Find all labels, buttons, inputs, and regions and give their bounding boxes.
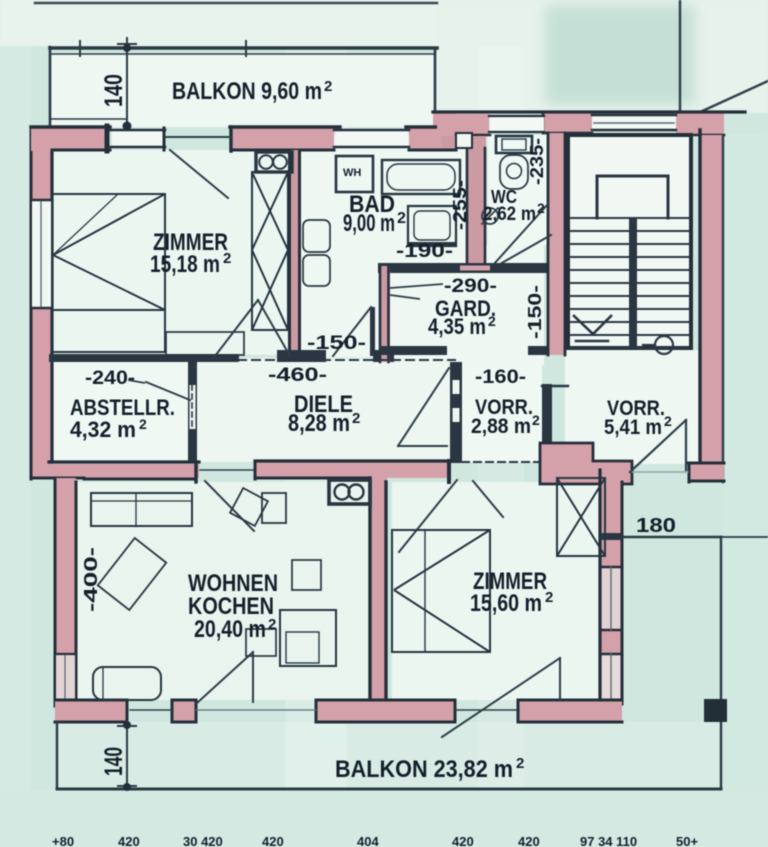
svg-text:2: 2: [139, 416, 147, 432]
svg-text:-160-: -160-: [475, 367, 526, 388]
svg-text:140: 140: [100, 74, 128, 107]
svg-text:-240-: -240-: [85, 368, 135, 389]
svg-text:97 34 110: 97 34 110: [580, 834, 637, 847]
svg-text:2: 2: [397, 210, 406, 227]
svg-text:-150-: -150-: [525, 285, 545, 339]
svg-text:4,32 m: 4,32 m: [70, 417, 136, 442]
svg-text:8,28 m: 8,28 m: [288, 410, 350, 437]
svg-text:BALKON 23,82 m: BALKON 23,82 m: [335, 756, 513, 783]
svg-text:2,62 m: 2,62 m: [483, 204, 536, 225]
svg-text:15,60 m: 15,60 m: [470, 590, 542, 617]
svg-text:420: 420: [262, 834, 284, 847]
svg-text:2: 2: [268, 616, 276, 633]
svg-text:15,18 m: 15,18 m: [150, 251, 220, 278]
svg-text:-190-: -190-: [396, 241, 453, 262]
svg-text:4,35 m: 4,35 m: [428, 314, 486, 339]
svg-text:+80: +80: [52, 834, 74, 847]
svg-text:420: 420: [518, 834, 540, 847]
svg-text:5,41 m: 5,41 m: [604, 416, 662, 439]
svg-text:2: 2: [352, 410, 360, 427]
svg-text:2: 2: [324, 78, 332, 95]
svg-text:140: 140: [100, 747, 128, 776]
svg-text:2: 2: [532, 412, 540, 428]
svg-text:404: 404: [357, 834, 379, 847]
svg-text:420: 420: [118, 834, 140, 847]
svg-text:20,40 m: 20,40 m: [194, 616, 266, 643]
svg-text:-150-: -150-: [307, 333, 366, 354]
svg-text:2: 2: [537, 200, 545, 216]
svg-text:30 420: 30 420: [183, 834, 223, 847]
svg-text:2: 2: [545, 589, 553, 606]
svg-text:BALKON 9,60 m: BALKON 9,60 m: [172, 78, 322, 105]
svg-text:2: 2: [223, 250, 231, 267]
svg-text:50+: 50+: [676, 834, 698, 847]
svg-text:180: 180: [636, 515, 676, 537]
svg-text:420: 420: [452, 834, 474, 847]
svg-text:WH: WH: [343, 167, 361, 179]
svg-text:9,00 m: 9,00 m: [343, 210, 395, 237]
svg-text:2: 2: [516, 755, 524, 772]
svg-text:2: 2: [664, 413, 672, 429]
svg-text:2,88 m: 2,88 m: [471, 415, 531, 438]
svg-text:-255-: -255-: [450, 180, 470, 230]
svg-text:-290-: -290-: [444, 276, 497, 297]
svg-text:-460-: -460-: [268, 365, 327, 386]
svg-text:-235-: -235-: [527, 138, 547, 185]
svg-text:2: 2: [488, 313, 496, 329]
svg-text:-400-: -400-: [81, 547, 101, 612]
